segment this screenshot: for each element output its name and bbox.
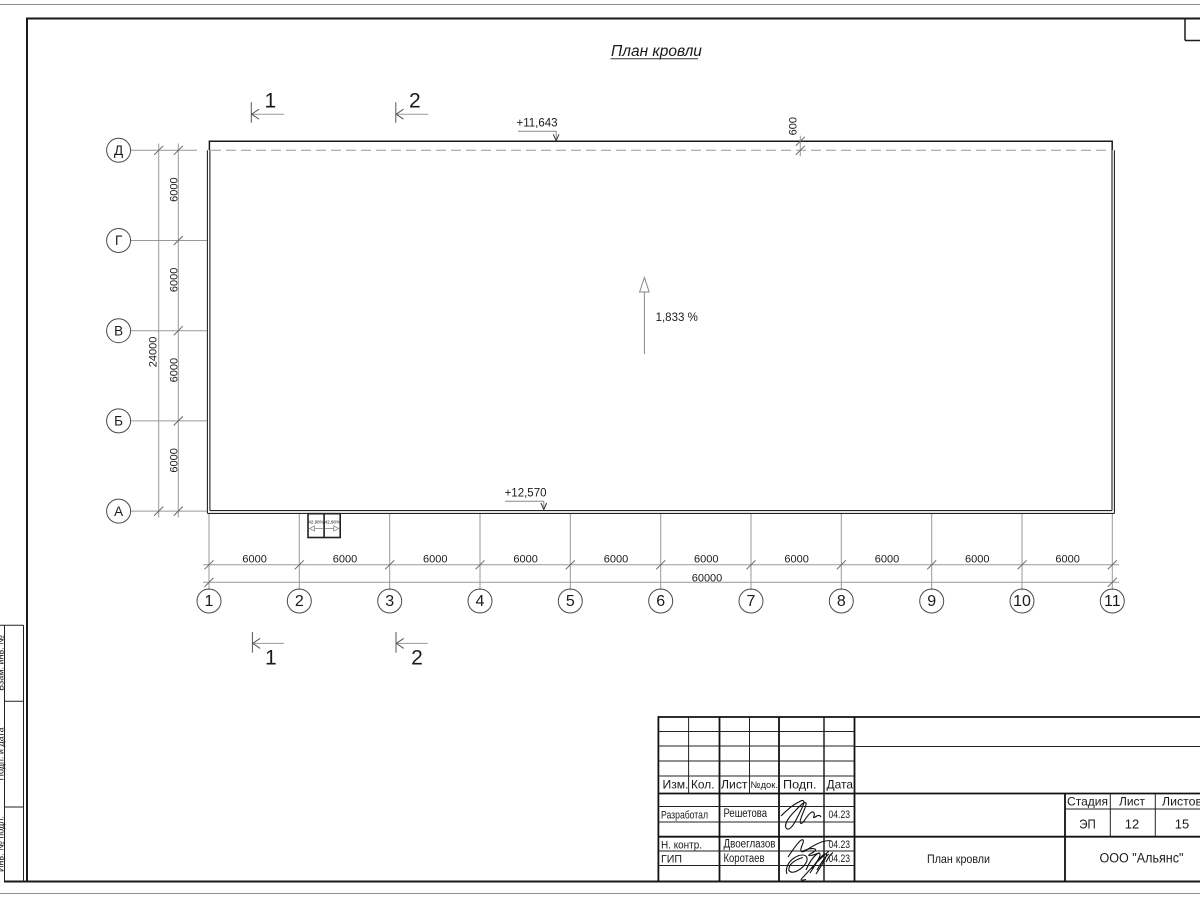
- svg-text:2: 2: [411, 647, 423, 670]
- svg-text:42,98%: 42,98%: [325, 520, 340, 525]
- svg-text:9: 9: [927, 593, 936, 610]
- svg-text:6000: 6000: [784, 553, 808, 565]
- svg-text:6000: 6000: [965, 553, 989, 565]
- svg-text:6000: 6000: [169, 448, 181, 472]
- svg-text:Двоеглазов: Двоеглазов: [724, 839, 776, 851]
- svg-text:04.23: 04.23: [829, 809, 851, 821]
- svg-text:Дата: Дата: [827, 778, 854, 792]
- svg-text:1: 1: [205, 593, 214, 610]
- svg-text:6000: 6000: [423, 553, 447, 565]
- svg-text:Кол.: Кол.: [691, 778, 715, 792]
- svg-text:6000: 6000: [1055, 553, 1079, 565]
- svg-text:24000: 24000: [148, 337, 160, 368]
- svg-text:6000: 6000: [169, 268, 181, 292]
- svg-text:1: 1: [264, 90, 276, 113]
- svg-text:5: 5: [566, 593, 575, 610]
- svg-text:Подп.: Подп.: [783, 778, 817, 792]
- svg-text:План кровли: План кровли: [927, 852, 990, 866]
- svg-text:1: 1: [265, 647, 277, 670]
- svg-text:Н. контр.: Н. контр.: [661, 840, 702, 852]
- svg-text:2: 2: [409, 90, 421, 113]
- svg-text:+11,643: +11,643: [517, 118, 558, 130]
- svg-text:1,833 %: 1,833 %: [656, 312, 698, 324]
- svg-text:11: 11: [1104, 593, 1121, 610]
- svg-text:ООО "Альянс": ООО "Альянс": [1100, 851, 1184, 866]
- svg-text:Взам. инв. №: Взам. инв. №: [0, 635, 6, 691]
- svg-text:6000: 6000: [333, 553, 357, 565]
- svg-text:600: 600: [788, 117, 800, 135]
- svg-text:6000: 6000: [694, 553, 718, 565]
- svg-text:04.23: 04.23: [829, 839, 851, 851]
- svg-text:12: 12: [1125, 816, 1139, 831]
- svg-text:15: 15: [1175, 816, 1189, 831]
- svg-text:В: В: [114, 323, 123, 338]
- svg-text:6000: 6000: [604, 553, 628, 565]
- svg-text:Стадия: Стадия: [1067, 795, 1108, 809]
- svg-text:6000: 6000: [242, 553, 266, 565]
- svg-text:10: 10: [1013, 593, 1031, 610]
- svg-text:4: 4: [476, 593, 485, 610]
- svg-text:Д: Д: [114, 143, 123, 158]
- svg-text:Лист: Лист: [1119, 795, 1146, 809]
- svg-text:Разработал: Разработал: [661, 809, 708, 821]
- svg-text:8: 8: [837, 593, 846, 610]
- svg-text:7: 7: [747, 593, 756, 610]
- svg-text:Решетова: Решетова: [724, 808, 768, 820]
- svg-text:2: 2: [295, 593, 304, 610]
- svg-text:ЭП: ЭП: [1079, 816, 1096, 831]
- svg-text:6: 6: [656, 593, 665, 610]
- svg-text:ГИП: ГИП: [661, 854, 682, 866]
- svg-text:Лист: Лист: [721, 778, 748, 792]
- svg-text:6000: 6000: [169, 177, 181, 201]
- svg-text:Изм.: Изм.: [663, 778, 689, 792]
- svg-text:6000: 6000: [875, 553, 899, 565]
- svg-text:42,98%: 42,98%: [308, 520, 323, 525]
- svg-text:План кровли: План кровли: [611, 43, 702, 60]
- svg-text:+12,570: +12,570: [505, 487, 547, 499]
- svg-text:Коротаев: Коротаев: [724, 853, 765, 865]
- svg-text:Г: Г: [115, 233, 123, 248]
- svg-text:Листов: Листов: [1162, 795, 1200, 809]
- svg-text:Инв. № подл.: Инв. № подл.: [0, 816, 6, 872]
- svg-text:Б: Б: [114, 414, 123, 429]
- svg-text:60000: 60000: [692, 572, 723, 584]
- svg-text:04.23: 04.23: [829, 853, 851, 865]
- svg-text:Подп. и дата: Подп. и дата: [0, 727, 6, 780]
- svg-text:6000: 6000: [513, 553, 537, 565]
- svg-text:6000: 6000: [169, 358, 181, 382]
- svg-text:№док.: №док.: [751, 780, 779, 791]
- svg-text:3: 3: [385, 593, 394, 610]
- svg-text:А: А: [114, 504, 123, 519]
